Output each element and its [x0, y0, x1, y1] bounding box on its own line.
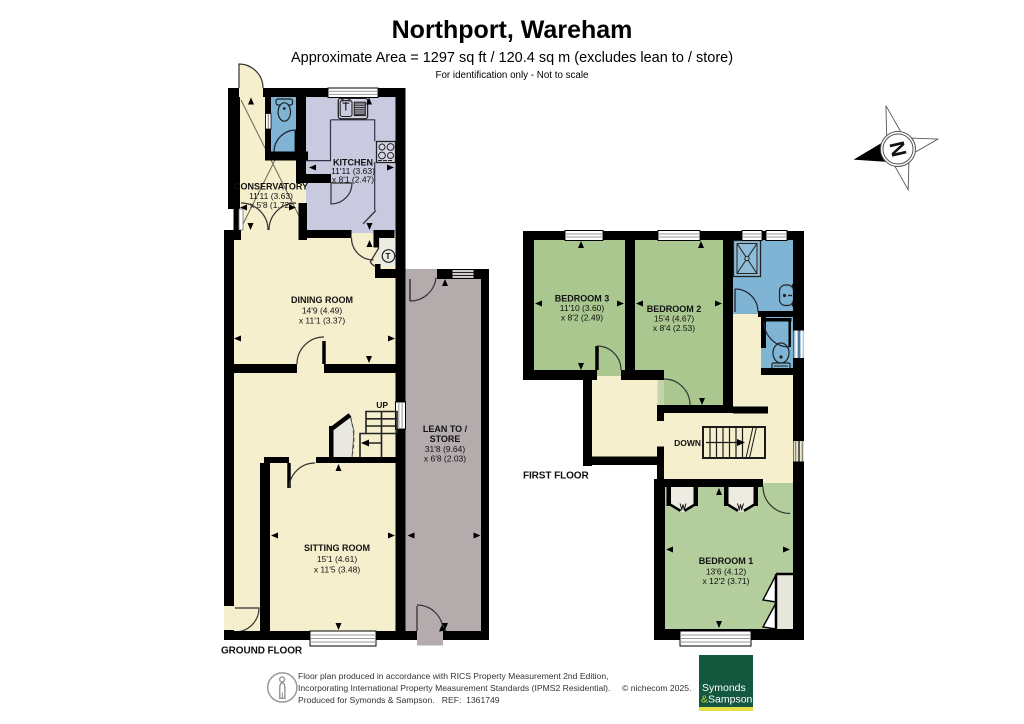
svg-text:Northport, Wareham: Northport, Wareham — [392, 16, 633, 44]
svg-text:© nichecom 2025.: © nichecom 2025. — [622, 683, 691, 693]
svg-text:UP: UP — [376, 400, 388, 410]
svg-text:14'9 (4.49): 14'9 (4.49) — [302, 306, 343, 316]
svg-text:&Sampson: &Sampson — [701, 694, 753, 706]
svg-text:CONSERVATORY: CONSERVATORY — [234, 182, 308, 192]
svg-text:15'1 (4.61): 15'1 (4.61) — [317, 554, 358, 564]
svg-text:x 5'8 (1.72): x 5'8 (1.72) — [250, 200, 292, 210]
svg-text:Symonds: Symonds — [702, 682, 746, 694]
svg-text:Produced for Symonds & Sampson: Produced for Symonds & Sampson. REF: 136… — [298, 695, 500, 705]
svg-text:x 11'5 (3.48): x 11'5 (3.48) — [314, 565, 361, 575]
svg-text:x 8'2 (2.49): x 8'2 (2.49) — [561, 312, 603, 322]
svg-text:x 6'8 (2.03): x 6'8 (2.03) — [424, 454, 466, 464]
svg-text:GROUND FLOOR: GROUND FLOOR — [221, 646, 303, 657]
svg-text:SITTING ROOM: SITTING ROOM — [304, 543, 370, 553]
svg-text:DINING ROOM: DINING ROOM — [291, 295, 353, 305]
svg-text:13'6 (4.12): 13'6 (4.12) — [706, 567, 747, 577]
svg-text:x 8'1 (2.47): x 8'1 (2.47) — [332, 175, 374, 185]
svg-text:BEDROOM 2: BEDROOM 2 — [647, 304, 702, 314]
svg-text:STORE: STORE — [430, 434, 461, 444]
svg-text:FIRST FLOOR: FIRST FLOOR — [523, 471, 589, 482]
svg-text:x 11'1 (3.37): x 11'1 (3.37) — [299, 316, 346, 326]
svg-text:For identification only - Not: For identification only - Not to scale — [435, 70, 589, 81]
svg-text:31'8 (9.64): 31'8 (9.64) — [425, 444, 466, 454]
svg-text:Approximate Area = 1297 sq ft: Approximate Area = 1297 sq ft / 120.4 sq… — [291, 50, 733, 66]
svg-text:BEDROOM 3: BEDROOM 3 — [555, 294, 610, 304]
svg-text:BEDROOM 1: BEDROOM 1 — [699, 556, 754, 566]
svg-text:x 8'4 (2.53): x 8'4 (2.53) — [653, 323, 695, 333]
svg-text:T: T — [386, 252, 391, 261]
svg-text:Floor plan produced in accorda: Floor plan produced in accordance with R… — [298, 671, 609, 681]
svg-text:Incorporating International Pr: Incorporating International Property Mea… — [298, 683, 610, 693]
svg-text:x 12'2 (3.71): x 12'2 (3.71) — [703, 576, 750, 586]
svg-text:DOWN: DOWN — [674, 438, 701, 448]
svg-text:15'4 (4.67): 15'4 (4.67) — [654, 314, 695, 324]
svg-text:LEAN TO /: LEAN TO / — [423, 424, 468, 434]
